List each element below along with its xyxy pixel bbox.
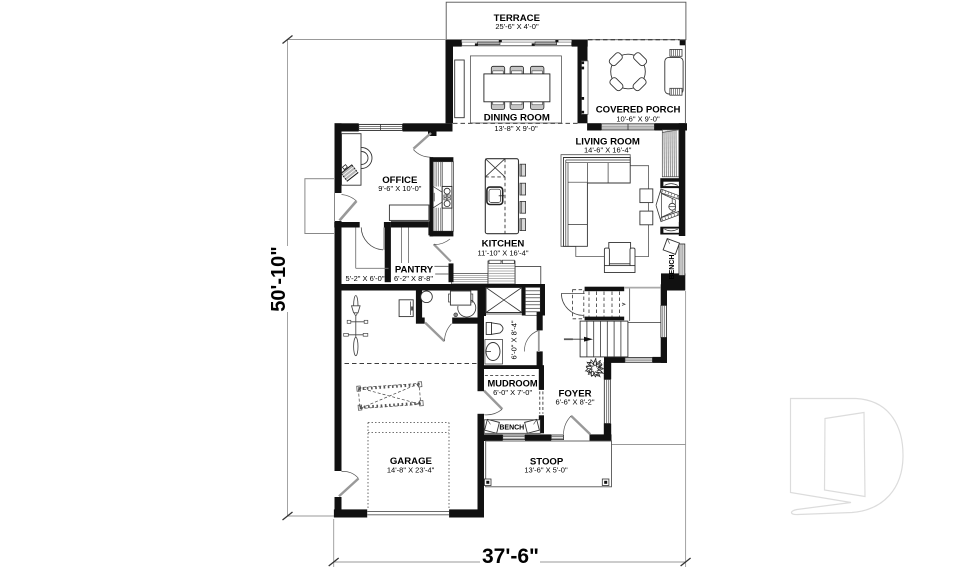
svg-text:37'-6": 37'-6": [482, 545, 539, 568]
svg-text:14'-6" X 16'-4": 14'-6" X 16'-4": [584, 146, 632, 155]
svg-text:9'-6" X 10'-0": 9'-6" X 10'-0": [378, 184, 422, 193]
svg-text:25'-6" X 4'-0": 25'-6" X 4'-0": [495, 22, 539, 31]
svg-text:6'-0" X 7'-0": 6'-0" X 7'-0": [493, 388, 532, 397]
svg-text:6'-2" X 8'-8": 6'-2" X 8'-8": [394, 274, 433, 283]
svg-text:6'-0" X 8'-4": 6'-0" X 8'-4": [510, 320, 519, 359]
svg-text:13'-8" X 9'-0": 13'-8" X 9'-0": [494, 124, 538, 133]
svg-text:13'-6" X 5'-0": 13'-6" X 5'-0": [524, 466, 568, 475]
svg-text:14'-8" X 23'-4": 14'-8" X 23'-4": [387, 466, 435, 475]
svg-text:BENCH: BENCH: [499, 424, 524, 431]
svg-text:10'-6" X 9'-0": 10'-6" X 9'-0": [616, 115, 660, 124]
svg-text:DINING ROOM: DINING ROOM: [484, 113, 550, 124]
svg-text:6'-6" X 8'-2": 6'-6" X 8'-2": [555, 398, 594, 407]
svg-text:BENCH: BENCH: [669, 255, 676, 280]
svg-text:11'-10" X 16'-4": 11'-10" X 16'-4": [478, 248, 529, 257]
svg-text:5'-2" X 6'-0": 5'-2" X 6'-0": [345, 274, 384, 283]
svg-text:50'-10": 50'-10": [268, 246, 290, 311]
